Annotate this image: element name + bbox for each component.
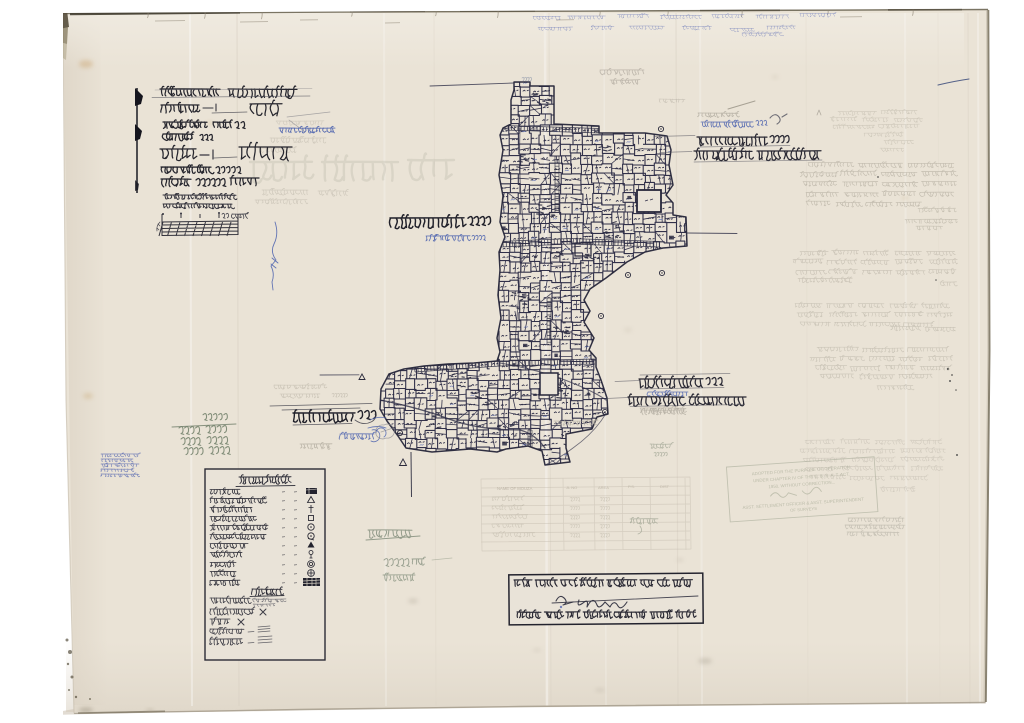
svg-text:NAME OF MOUZA: NAME OF MOUZA: [497, 486, 533, 491]
svg-text:P.S.: P.S.: [628, 484, 635, 489]
svg-text:AREA: AREA: [598, 485, 609, 490]
svg-text:DIST: DIST: [660, 484, 670, 489]
svg-text:JL NO: JL NO: [566, 485, 577, 490]
